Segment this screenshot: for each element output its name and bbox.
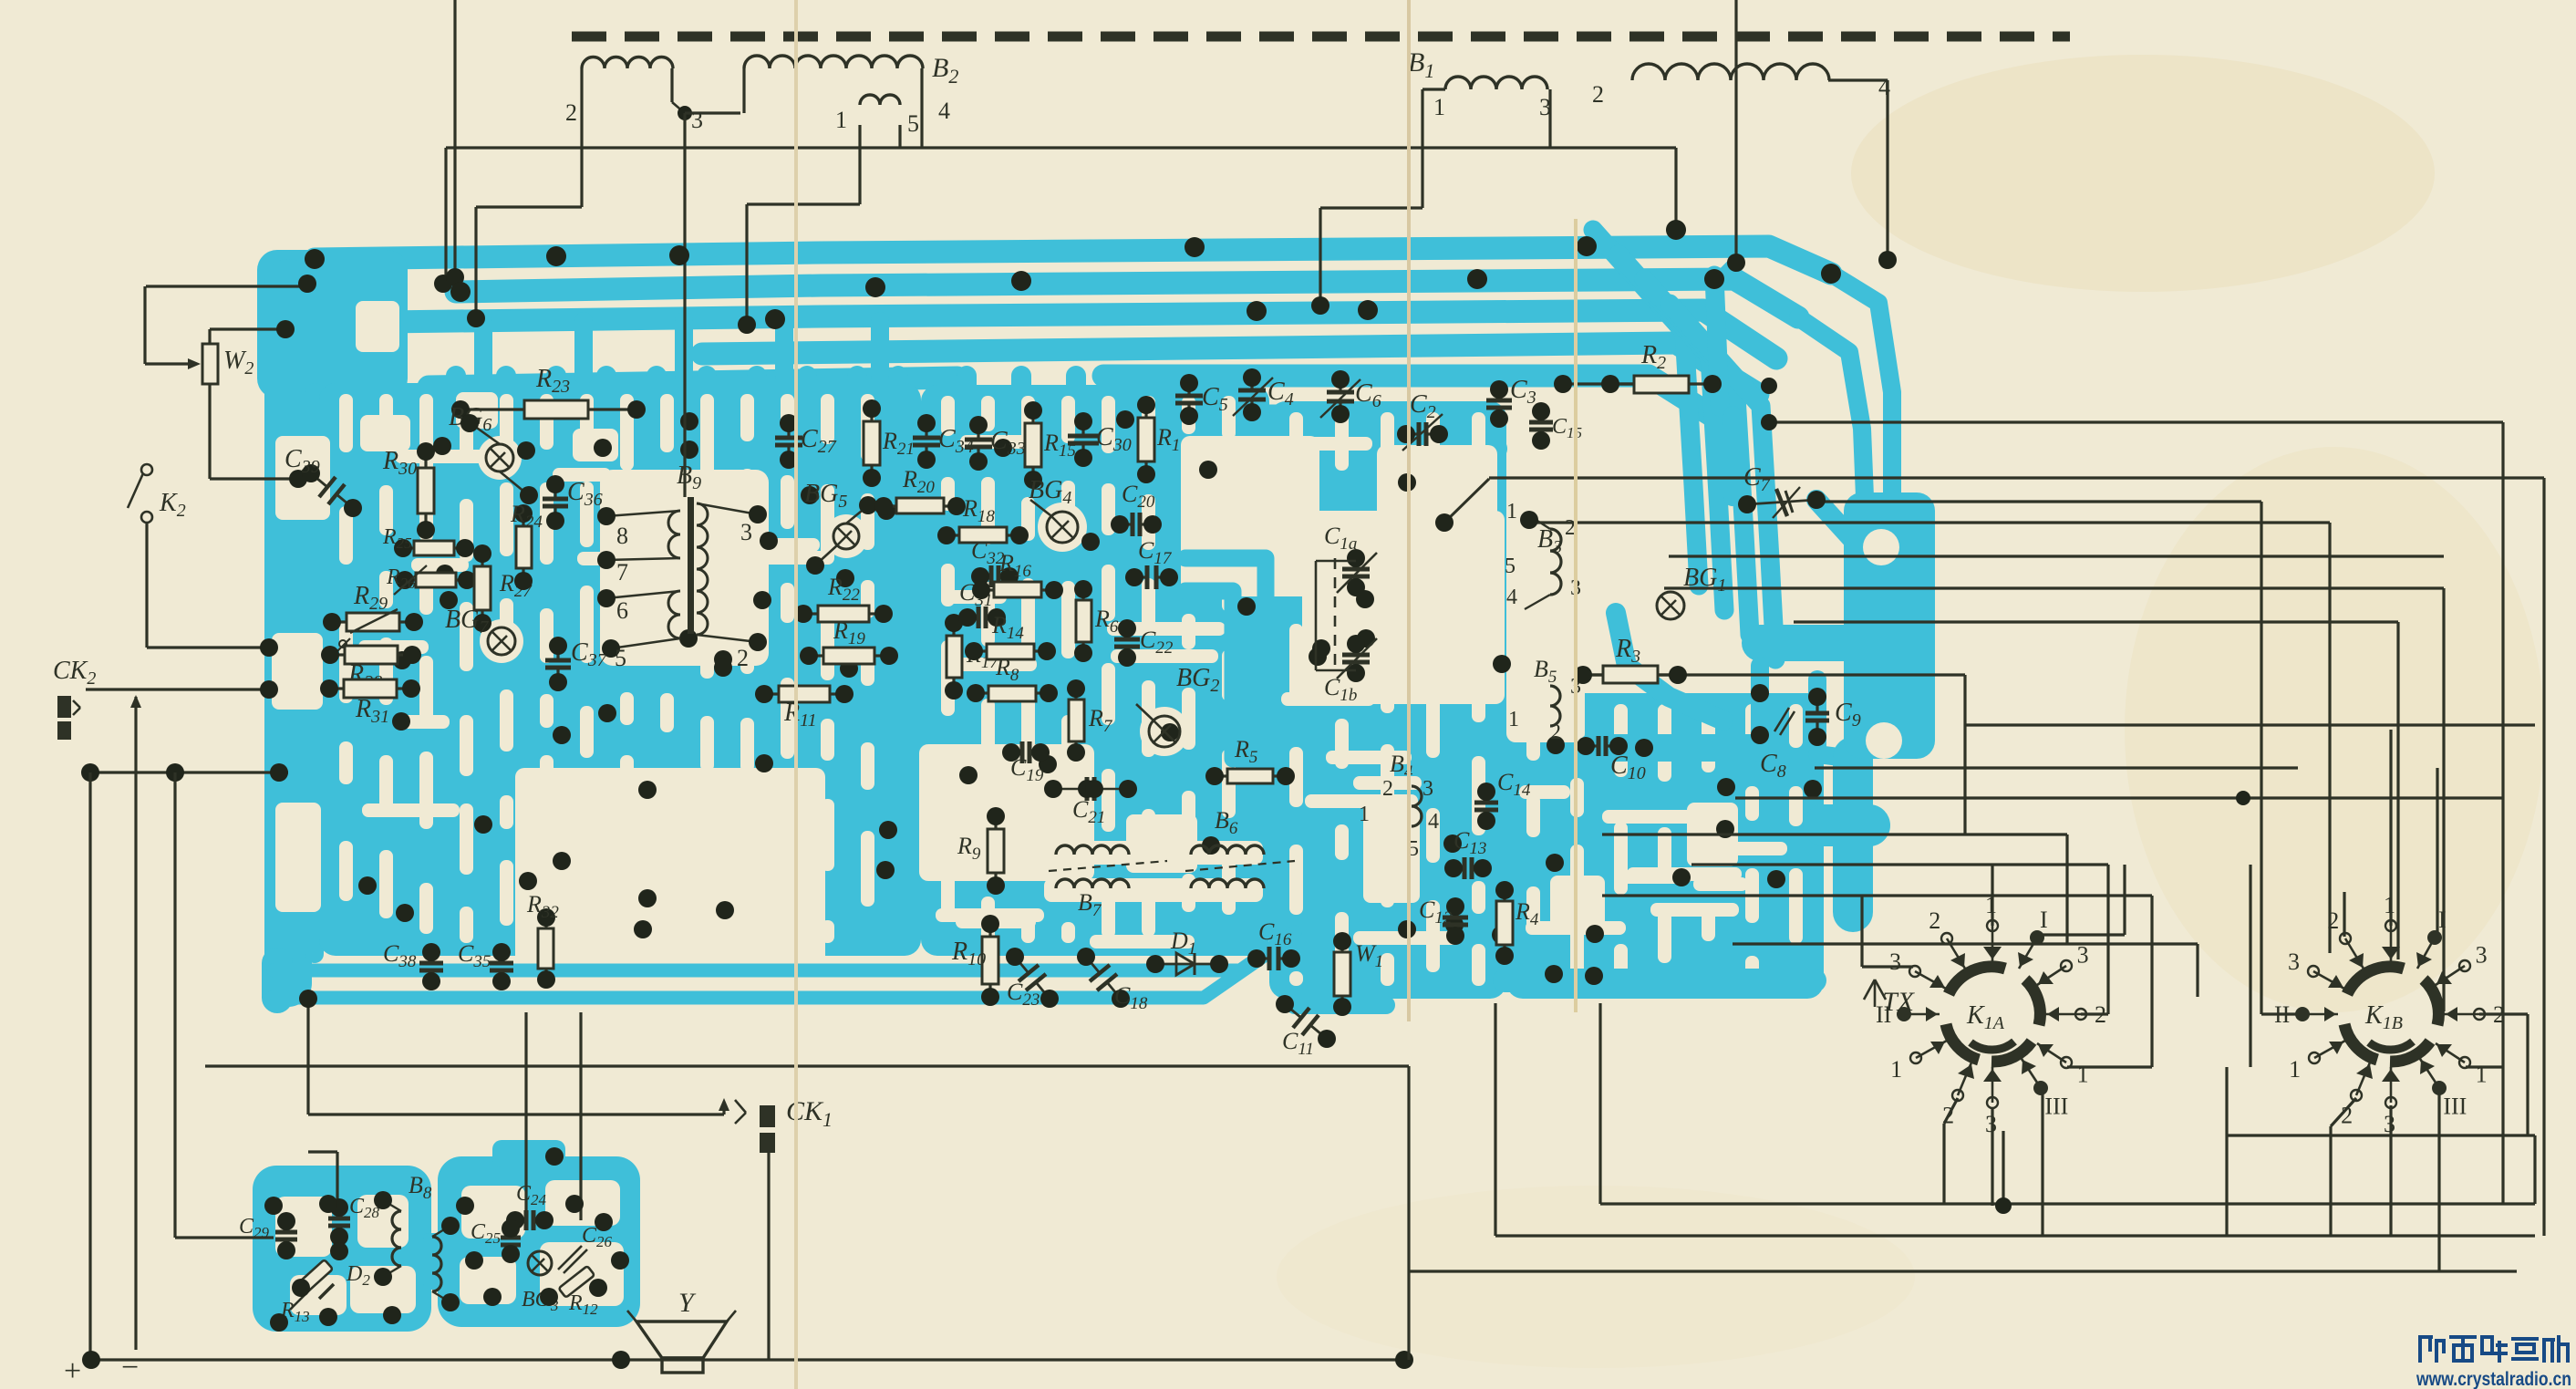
svg-text:7: 7 [616, 559, 628, 586]
svg-text:3: 3 [1985, 1111, 1997, 1137]
svg-text:4: 4 [1506, 586, 1517, 609]
svg-text:3: 3 [2288, 948, 2300, 975]
svg-text:1: 1 [2384, 892, 2395, 918]
svg-text:3: 3 [740, 519, 752, 545]
svg-text:3: 3 [2077, 942, 2089, 969]
svg-text:2: 2 [2327, 907, 2339, 934]
svg-text:1: 1 [2077, 1061, 2089, 1087]
svg-text:8: 8 [616, 523, 628, 549]
svg-text:1: 1 [1890, 1056, 1902, 1083]
svg-text:2: 2 [2095, 1001, 2106, 1028]
svg-text:2: 2 [1382, 777, 1393, 801]
svg-text:3: 3 [2476, 942, 2488, 969]
svg-text:III: III [2443, 1094, 2467, 1120]
svg-text:1: 1 [2476, 1061, 2488, 1087]
svg-text:5: 5 [907, 110, 919, 137]
svg-text:1: 1 [1433, 94, 1445, 120]
svg-text:1: 1 [1508, 708, 1519, 731]
svg-text:1: 1 [1359, 803, 1370, 826]
svg-text:I: I [2438, 907, 2447, 933]
svg-text:3: 3 [691, 107, 703, 133]
svg-text:1: 1 [1506, 500, 1517, 523]
svg-text:2: 2 [1929, 907, 1940, 934]
svg-text:1: 1 [1985, 892, 1997, 918]
svg-text:TX: TX [1882, 987, 1916, 1017]
svg-text:+: + [64, 1354, 81, 1388]
svg-text:III: III [2044, 1094, 2068, 1120]
svg-text:2: 2 [2493, 1001, 2505, 1028]
svg-text:II: II [2274, 1001, 2290, 1028]
svg-text:5: 5 [1505, 555, 1516, 578]
svg-text:3: 3 [2384, 1111, 2395, 1137]
svg-text:2: 2 [2341, 1102, 2353, 1128]
svg-text:2: 2 [1550, 720, 1561, 744]
svg-text:1: 1 [835, 107, 847, 133]
svg-text:4: 4 [938, 98, 950, 124]
svg-text:6: 6 [616, 597, 628, 624]
svg-text:−: − [121, 1351, 139, 1384]
svg-text:www.crystalradio.cn: www.crystalradio.cn [2416, 1369, 2571, 1389]
svg-text:2: 2 [1592, 81, 1604, 108]
svg-text:2: 2 [737, 645, 749, 671]
svg-text:I: I [2040, 907, 2048, 933]
svg-text:5: 5 [615, 645, 626, 671]
svg-text:1: 1 [2289, 1056, 2301, 1083]
svg-text:3: 3 [1422, 777, 1433, 801]
svg-text:2: 2 [565, 99, 577, 126]
svg-text:3: 3 [1889, 948, 1901, 975]
svg-text:2: 2 [1942, 1102, 1954, 1128]
svg-text:4: 4 [1428, 810, 1439, 834]
